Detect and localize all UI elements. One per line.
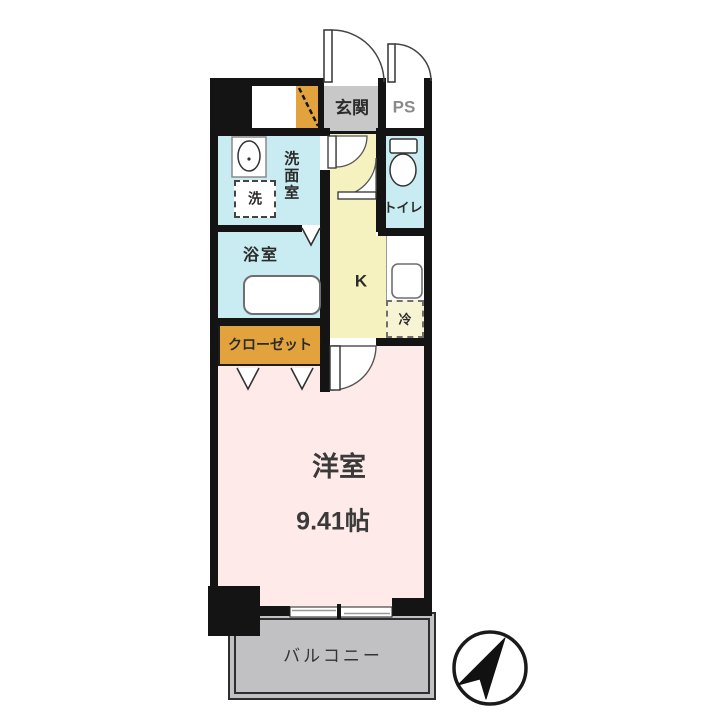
main-room-door-icon (330, 346, 376, 390)
washroom-label: 洗面室 (282, 151, 299, 202)
kitchen-label: K (355, 273, 367, 292)
bathtub-icon (244, 276, 320, 314)
hall-door-icon (328, 136, 367, 168)
fridge-label: 冷 (398, 313, 411, 327)
toilet-icon (390, 139, 417, 186)
entrance-step-line-dashed (299, 88, 318, 126)
main-room-label: 洋室 (312, 453, 366, 483)
floor-plan: 玄関 PS 洗面室 洗 トイレ 浴室 K 冷 クローゼット 洋室 9.41帖 バ… (0, 0, 720, 718)
entrance-door-icon (324, 30, 384, 82)
closet-folding-door-icon (237, 368, 313, 389)
north-arrow-icon (454, 632, 526, 704)
balcony-label: バルコニー (283, 648, 383, 667)
sink-icon (232, 137, 266, 177)
ps-door-icon (388, 44, 431, 82)
entrance-label: 玄関 (335, 100, 369, 119)
balcony-window-icon (290, 604, 392, 619)
main-room-size-label: 9.41帖 (296, 508, 370, 536)
bathroom-label: 浴室 (243, 247, 279, 265)
kitchen-sink-icon (392, 264, 422, 298)
bath-folding-door-icon (302, 228, 320, 245)
washing-machine-label: 洗 (248, 191, 262, 206)
toilet-label: トイレ (383, 201, 422, 215)
closet-label: クローゼット (228, 337, 312, 352)
pipe-space-label: PS (393, 99, 416, 118)
